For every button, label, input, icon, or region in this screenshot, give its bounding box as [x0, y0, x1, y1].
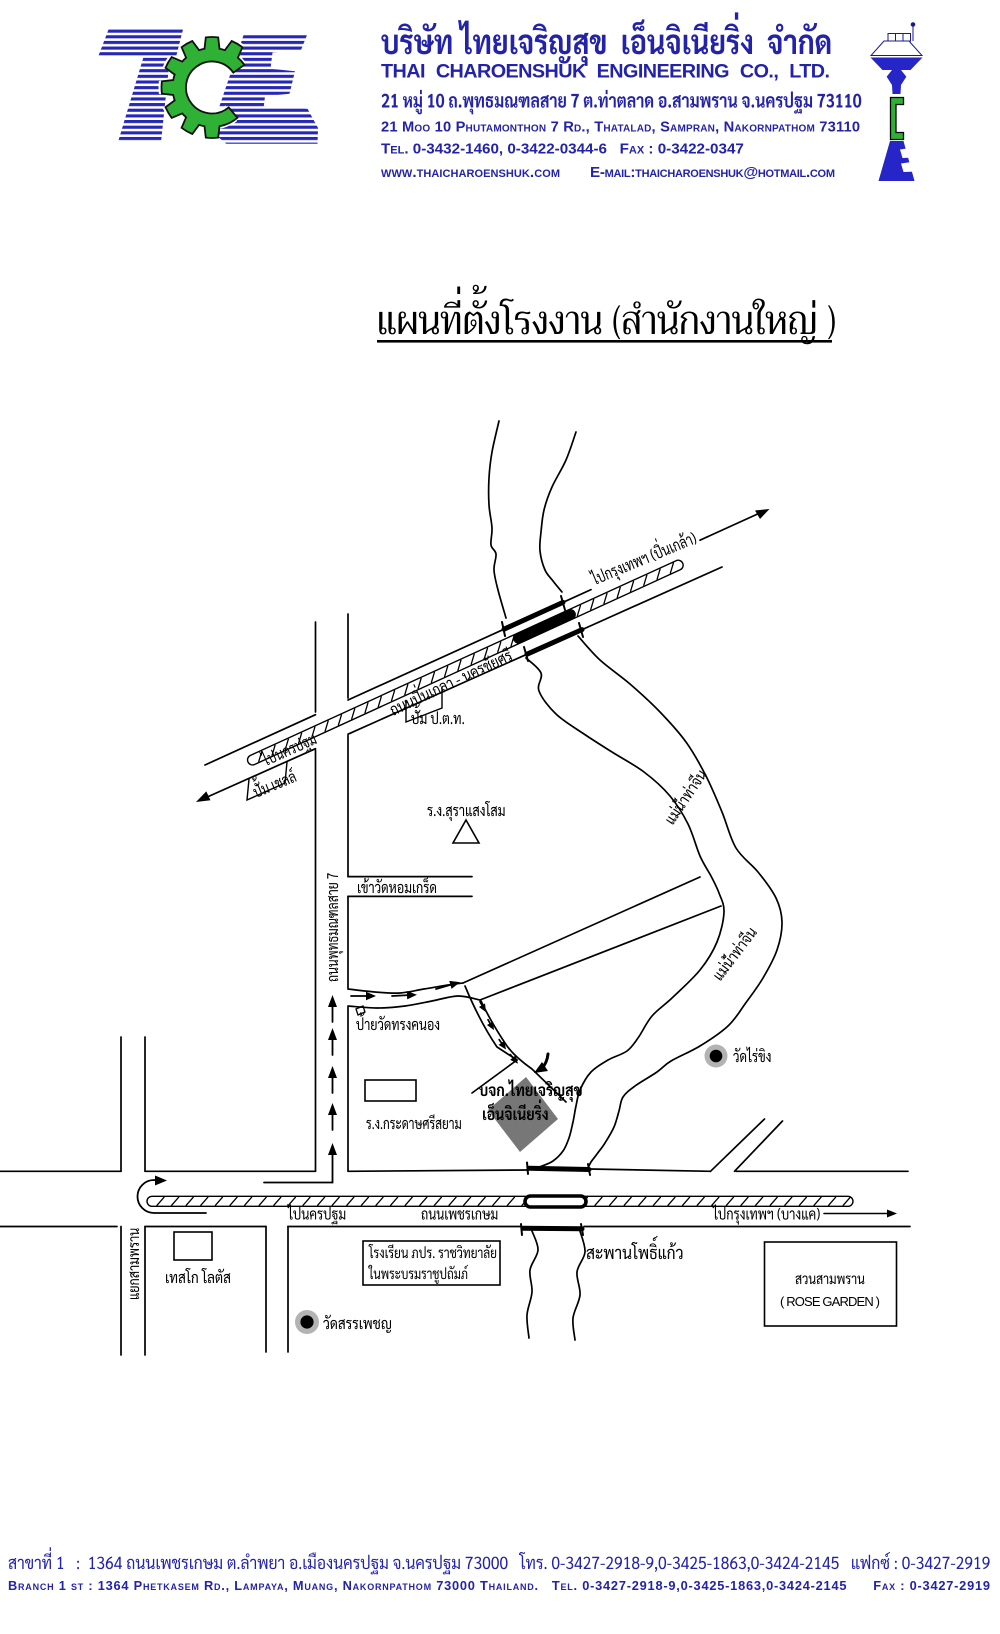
svg-text:www.thaicharoenshuk.com: www.thaicharoenshuk.com: [381, 164, 560, 181]
svg-text:THAI CHAROENSHUK ENGINEERING C: THAI CHAROENSHUK ENGINEERING CO., LTD.: [381, 61, 830, 83]
svg-text:Branch 1 st : 1364 Phetkasem R: Branch 1 st : 1364 Phetkasem Rd., Lampay…: [8, 1578, 990, 1593]
svg-text:( ROSE GARDEN ): ( ROSE GARDEN ): [780, 1294, 880, 1309]
svg-text:Tel. 0-3432-1460, 0-3422-0344-: Tel. 0-3432-1460, 0-3422-0344-6 Fax : 0-…: [381, 141, 744, 158]
svg-text:E-mail:thaicharoenshuk@hotmail: E-mail:thaicharoenshuk@hotmail.com: [590, 164, 835, 181]
svg-text:21 Moo 10 Phutamonthon 7 Rd.,: 21 Moo 10 Phutamonthon 7 Rd., Thatalad, …: [381, 120, 860, 136]
